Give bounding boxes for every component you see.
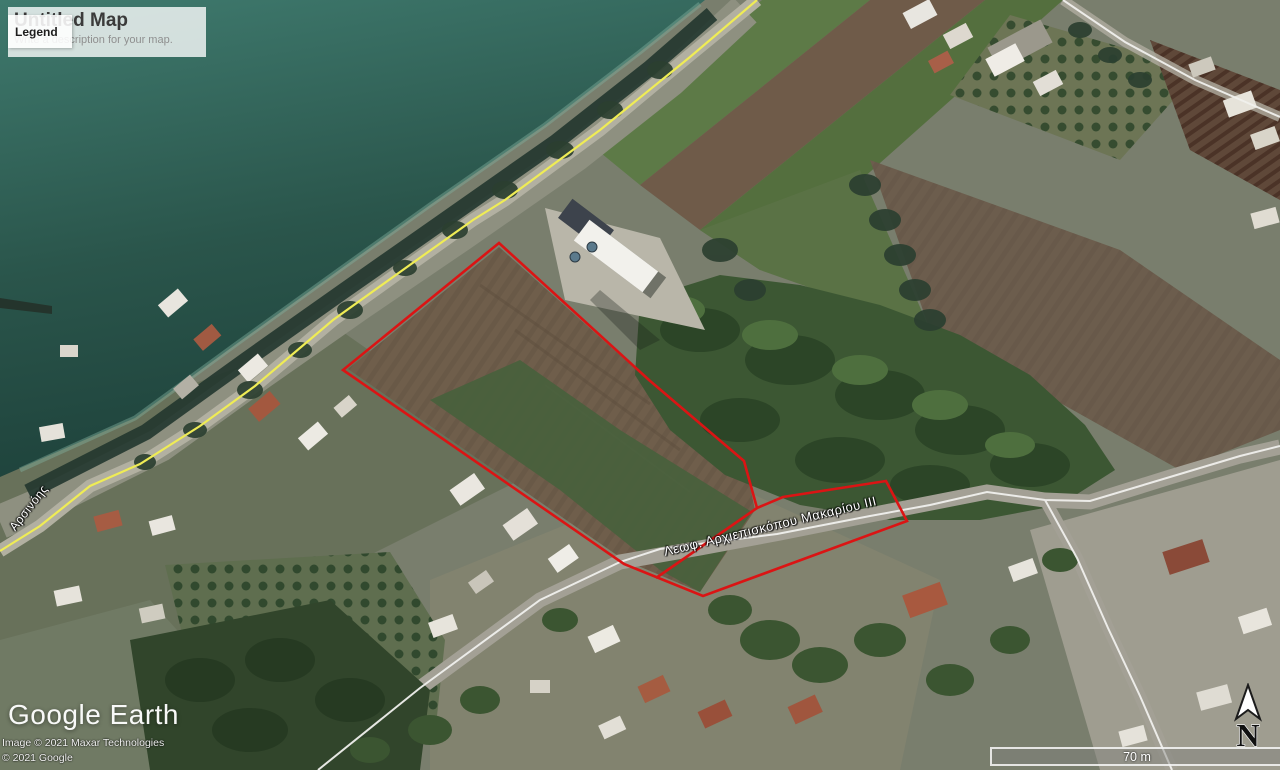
scale-bar-label: 70 m (1123, 750, 1151, 764)
legend-panel[interactable]: Legend (8, 15, 72, 48)
map-viewport[interactable]: Λεωφ. Αρχιεπισκόπου Μακαρίου III Αρσινόη… (0, 0, 1280, 770)
copyright-attribution: © 2021 Google (2, 752, 73, 764)
north-letter: N (1236, 717, 1259, 751)
north-arrow-icon (1236, 685, 1260, 719)
imagery-attribution: Image © 2021 Maxar Technologies (2, 737, 164, 749)
north-compass[interactable]: N (1229, 683, 1267, 756)
google-earth-logo: Google Earth (8, 699, 179, 731)
satellite-canvas[interactable] (0, 0, 1280, 770)
legend-label: Legend (15, 25, 58, 39)
